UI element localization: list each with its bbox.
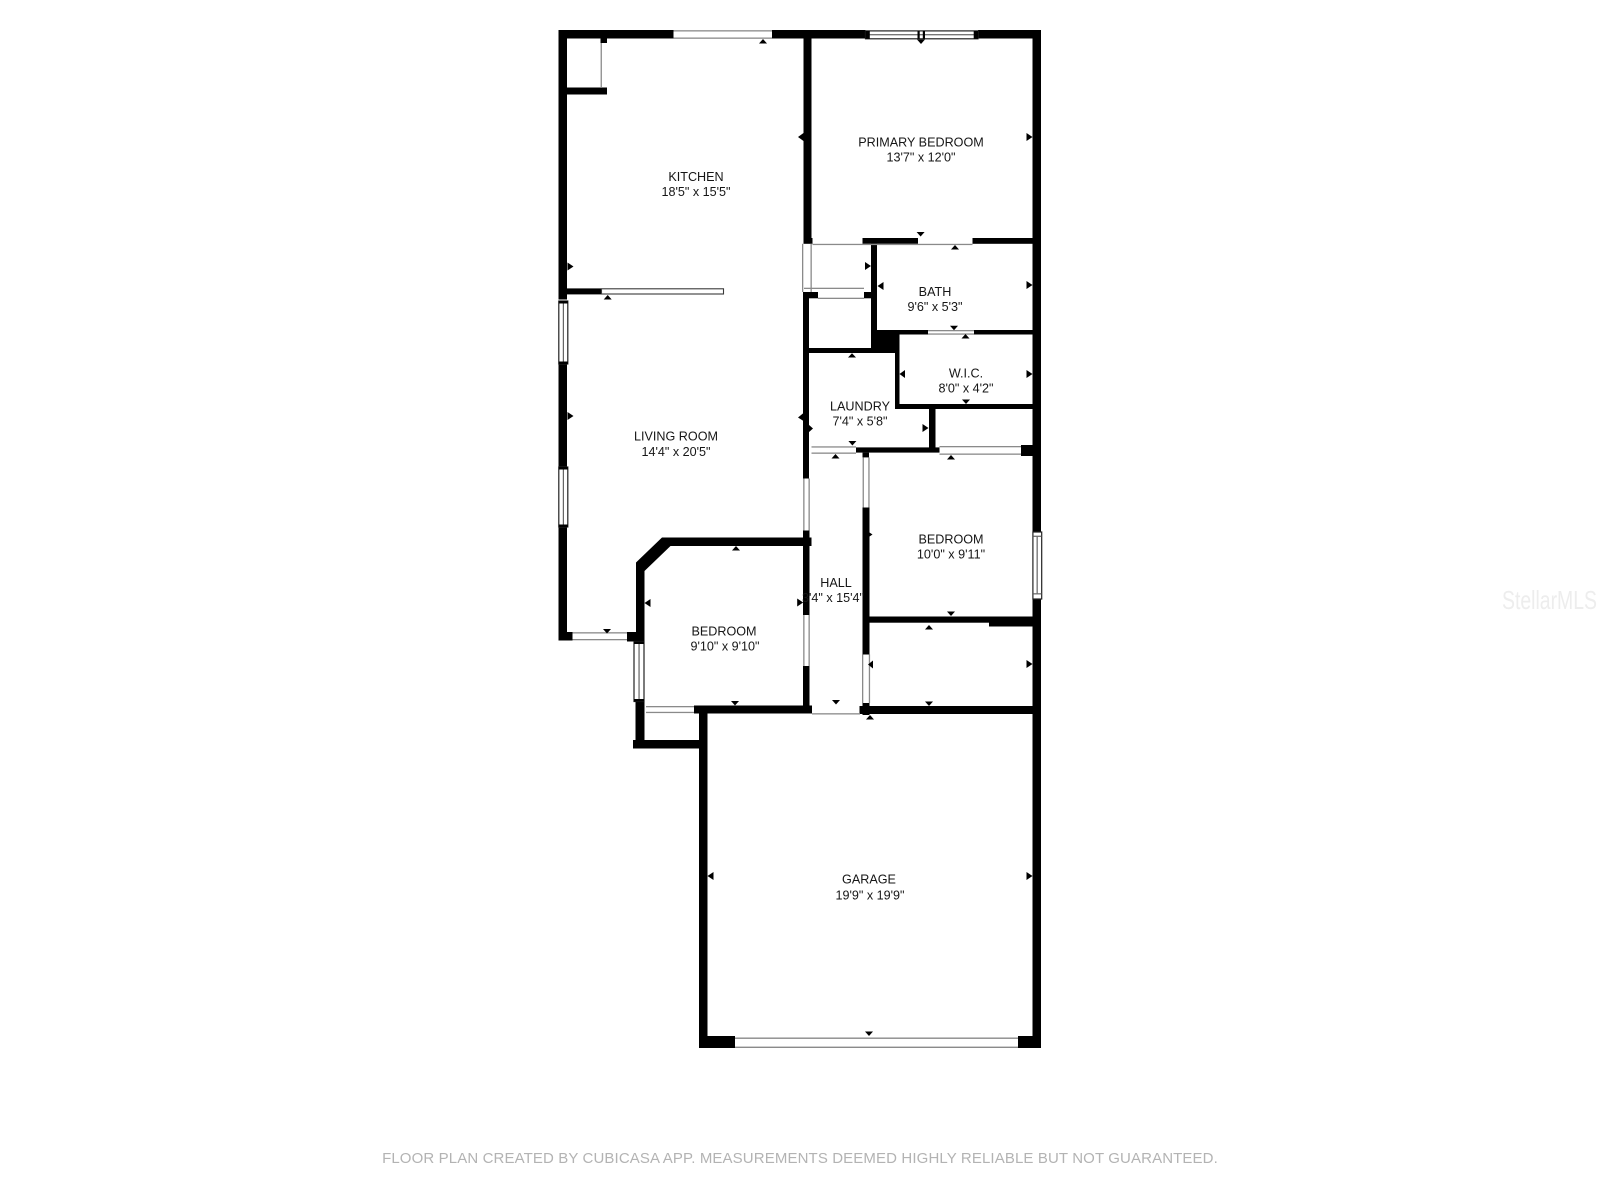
- svg-text:StellarMLS: StellarMLS: [1502, 585, 1597, 615]
- svg-text:9'6" x 5'3": 9'6" x 5'3": [907, 300, 962, 314]
- svg-text:3'4" x 15'4": 3'4" x 15'4": [802, 591, 864, 605]
- svg-text:BEDROOM: BEDROOM: [691, 625, 756, 639]
- svg-text:19'9" x 19'9": 19'9" x 19'9": [835, 889, 904, 903]
- svg-text:KITCHEN: KITCHEN: [668, 170, 723, 184]
- svg-text:HALL: HALL: [820, 576, 852, 590]
- svg-text:FLOOR PLAN CREATED BY CUBICASA: FLOOR PLAN CREATED BY CUBICASA APP. MEAS…: [382, 1150, 1218, 1167]
- svg-text:PRIMARY BEDROOM: PRIMARY BEDROOM: [858, 136, 984, 150]
- svg-text:14'4" x 20'5": 14'4" x 20'5": [641, 445, 710, 459]
- svg-text:7'4" x 5'8": 7'4" x 5'8": [832, 415, 887, 429]
- svg-text:BEDROOM: BEDROOM: [918, 533, 983, 547]
- svg-text:LIVING ROOM: LIVING ROOM: [634, 430, 718, 444]
- svg-text:18'5" x 15'5": 18'5" x 15'5": [661, 185, 730, 199]
- svg-text:BATH: BATH: [919, 285, 952, 299]
- svg-text:10'0" x 9'11": 10'0" x 9'11": [917, 548, 985, 562]
- svg-text:W.I.C.: W.I.C.: [949, 367, 983, 381]
- svg-text:LAUNDRY: LAUNDRY: [830, 400, 891, 414]
- svg-text:13'7" x 12'0": 13'7" x 12'0": [886, 151, 955, 165]
- svg-text:GARAGE: GARAGE: [842, 873, 896, 887]
- svg-text:9'10" x 9'10": 9'10" x 9'10": [690, 640, 759, 654]
- svg-text:8'0" x 4'2": 8'0" x 4'2": [938, 382, 993, 396]
